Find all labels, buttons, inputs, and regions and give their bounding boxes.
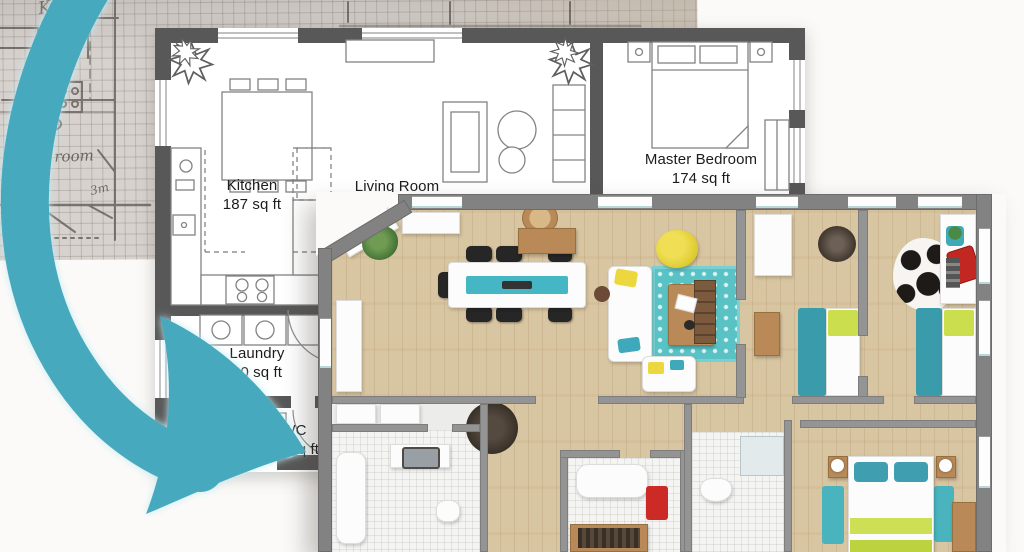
interior-wall <box>452 424 480 432</box>
kitchen-label: Kitchen 187 sq ft <box>200 176 304 214</box>
lime-blanket <box>850 518 932 534</box>
window-3d <box>979 228 990 284</box>
interior-wall <box>560 450 568 552</box>
teal-pillow <box>894 462 928 482</box>
teal-pillow <box>854 462 888 482</box>
lime-bedding <box>944 310 974 336</box>
lamp <box>939 459 952 472</box>
window-3d <box>598 196 652 208</box>
wc-name: WC <box>281 422 306 439</box>
wc-area: 22 sq ft <box>269 441 319 458</box>
interior-wall <box>598 396 744 404</box>
teal-bed-runner <box>916 308 942 396</box>
interior-wall <box>858 210 868 336</box>
interior-wall <box>736 210 746 300</box>
teal-rug <box>934 486 954 542</box>
side-table <box>594 286 610 302</box>
laundry-name: Laundry <box>230 345 285 362</box>
washer <box>336 404 376 424</box>
kitchen-name: Kitchen <box>227 177 278 194</box>
red-bath-mat <box>646 486 668 520</box>
table-decor <box>684 320 695 330</box>
sketch-utility-label: Utility room <box>2 146 94 167</box>
teal-rug <box>822 486 844 544</box>
entry-cabinet <box>336 300 362 392</box>
laundry-label: Laundry 60 sq ft <box>205 344 309 382</box>
mirror <box>402 447 440 469</box>
shower <box>740 436 784 476</box>
dresser <box>952 502 976 552</box>
teal-bed-runner <box>798 308 826 396</box>
toilet <box>700 478 732 502</box>
round-rug <box>818 226 856 262</box>
shelf <box>946 258 960 288</box>
yellow-beanbag <box>656 230 698 268</box>
dining-chair <box>496 306 522 322</box>
lime-blanket <box>850 540 932 552</box>
interior-wall <box>560 450 620 458</box>
desk <box>754 312 780 356</box>
interior-wall <box>684 404 692 552</box>
potted-plant <box>946 226 964 246</box>
interior-wall <box>914 396 976 404</box>
floorplan-illustration: Kitchen Utility room 3m <box>0 0 1024 552</box>
interior-wall <box>332 424 428 432</box>
table-centerpiece <box>502 281 532 289</box>
wc-label: WC 22 sq ft <box>262 421 326 459</box>
console-table <box>518 228 576 254</box>
window-3d <box>756 196 798 208</box>
interior-wall <box>332 396 536 404</box>
toilet <box>436 500 460 522</box>
interior-wall <box>480 404 488 552</box>
interior-wall <box>784 420 792 552</box>
interior-wall <box>792 396 884 404</box>
window-3d <box>979 300 990 356</box>
bathtub <box>576 464 648 498</box>
lime-bedding <box>828 310 858 336</box>
master-bedroom-name: Master Bedroom <box>645 151 757 168</box>
master-bedroom-label: Master Bedroom 174 sq ft <box>632 150 770 188</box>
teal-pillow <box>670 360 684 370</box>
window-3d <box>979 436 990 488</box>
interior-wall <box>736 344 746 398</box>
tall-cabinet <box>694 280 716 344</box>
outer-wall-left <box>318 248 332 552</box>
dining-chair <box>466 246 492 262</box>
dining-chair <box>548 306 572 322</box>
interior-wall <box>858 376 868 398</box>
window-3d <box>412 196 462 208</box>
wardrobe <box>754 214 792 276</box>
chest-top <box>578 528 640 548</box>
yellow-pillow <box>648 362 664 374</box>
interior-wall <box>800 420 976 428</box>
kitchen-area: 187 sq ft <box>223 196 281 213</box>
window-3d <box>918 196 962 208</box>
laundry-area: 60 sq ft <box>232 364 282 381</box>
master-bedroom-area: 174 sq ft <box>672 170 730 187</box>
window-bench <box>402 212 460 234</box>
dryer <box>380 404 420 424</box>
window-3d <box>848 196 896 208</box>
lamp <box>831 459 844 472</box>
outer-wall-top <box>398 194 992 210</box>
bathtub <box>336 452 366 544</box>
window-3d <box>320 318 331 368</box>
dining-chair <box>466 306 492 322</box>
